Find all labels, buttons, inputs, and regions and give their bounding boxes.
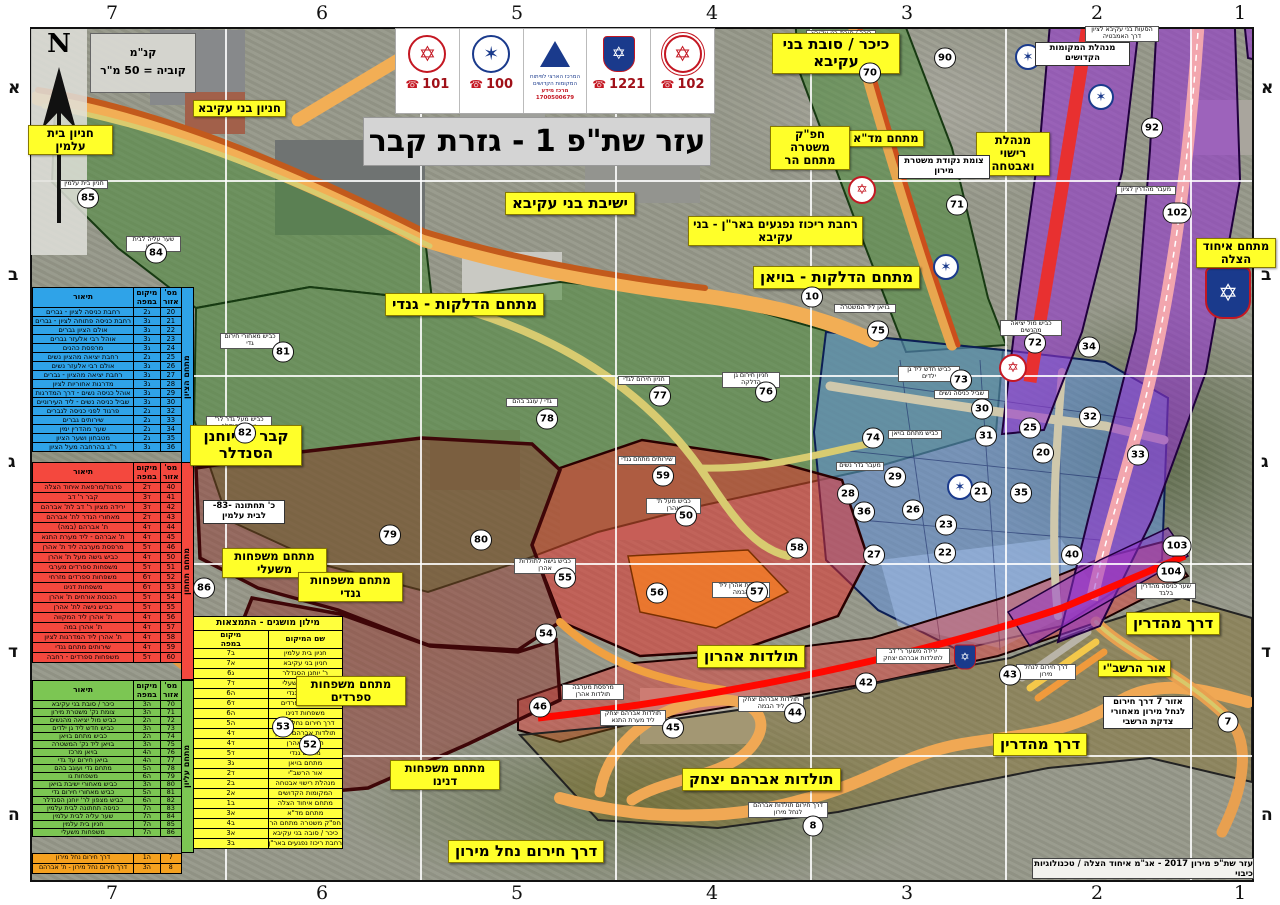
legend-row: 55ד5כביש גישה לת' אהרן bbox=[33, 603, 182, 613]
legend-row: 8ה3דרך חירום נחל מירון - ת' אברהם bbox=[33, 864, 182, 874]
scale-box: קנ"מ קוביה = 50 מ"ר bbox=[90, 33, 196, 93]
legend-row: 73ה3כביש חדש ליד גן ילדים bbox=[33, 725, 182, 733]
north-arrow-icon bbox=[36, 59, 82, 229]
logo-police: ✶ ☎ 100 bbox=[459, 29, 523, 113]
col-header-description: תיאור bbox=[33, 681, 134, 701]
legend-row: 33ג2שירותים גברים bbox=[33, 416, 182, 425]
legend-row: 58ד4ת' אהרן ליד המדרגות לציון bbox=[33, 633, 182, 643]
north-label: N bbox=[31, 29, 87, 59]
glossary-row: תולדות אברהם יצחקד4 bbox=[194, 729, 343, 739]
legend-row: 21ג3רחבת כניסה פתוחה לציון - גברים bbox=[33, 317, 182, 326]
center-line3: מרכז מידע bbox=[530, 88, 580, 95]
emergency-logos-strip: ✡ ☎ 101 ✶ ☎ 100 המרכז הארצי לפיתוח המקומ… bbox=[395, 28, 715, 114]
col-header-description: תיאור bbox=[33, 288, 134, 308]
legend-table-blue: מס' אזור מיקום במפה תיאור 20ג2רחבת כניסה… bbox=[32, 287, 182, 452]
legend-row: 56ד4ת' אהרן ליד המקווה bbox=[33, 613, 182, 623]
glossary-row: מתחם איחוד הצלהב1 bbox=[194, 799, 343, 809]
glossary-row: מתחם מד"אא3 bbox=[194, 809, 343, 819]
col-header-area-num: מס' אזור bbox=[160, 463, 181, 483]
legend-row: 71ה3צומת נק' משטרת מירון bbox=[33, 709, 182, 717]
legend-row: 79ה6משפחות גו bbox=[33, 773, 182, 781]
glossary-row: אור הרשב"יד2 bbox=[194, 769, 343, 779]
legend-row: 75ה3בויאן ליד נק' המשטרה bbox=[33, 741, 182, 749]
glossary-row: חניון בית עלמיןב7 bbox=[194, 649, 343, 659]
logo-fire-rescue: ✡ ☎ 102 bbox=[650, 29, 714, 113]
logo-united-hatzalah: ✡ ☎ 1221 bbox=[586, 29, 650, 113]
legend-row: 74ה2כביש מתחם בויאן bbox=[33, 733, 182, 741]
legend-row: 32ג2פרגוד לפני כניסה לגברים bbox=[33, 407, 182, 416]
glossary-row: משפחות משעליד7 bbox=[194, 679, 343, 689]
logo-mda: ✡ ☎ 101 bbox=[396, 29, 459, 113]
mda-phone: 101 bbox=[422, 77, 449, 92]
legend-row: 26ג3אולם רבי אלעזר נשים bbox=[33, 362, 182, 371]
legend-row: 40ד2פרגוד/מרפאת איחוד הצלה bbox=[33, 483, 182, 493]
legend-row: 46ד5מרפסת מערבה ליד ת' אהרן bbox=[33, 543, 182, 553]
legend-row: 34ג2שער מהדרין ימין bbox=[33, 425, 182, 434]
legend-row: 22ג3אולם הציון גברים bbox=[33, 326, 182, 335]
glossary-row: חניון בני עקיבאא7 bbox=[194, 659, 343, 669]
center-line1: המרכז הארצי לפיתוח bbox=[530, 74, 580, 81]
col-header-location: מיקום במפה bbox=[134, 681, 161, 701]
legend-row: 70ה3כיכר / סובת בני עקיבא bbox=[33, 701, 182, 709]
north-arrow: N bbox=[31, 29, 87, 255]
scale-line1: קנ"מ bbox=[91, 44, 195, 62]
map-margin-left bbox=[0, 0, 30, 905]
legend-row: 20ג2רחבת כניסה לציון - גברים bbox=[33, 308, 182, 317]
legend-table-orange: 7ה1דרך חירום נחל מירון 8ה3דרך חירום נחל … bbox=[32, 853, 182, 874]
hatzalah-phone: 1221 bbox=[609, 77, 645, 92]
glossary-row: משפחות ספרדיםד6 bbox=[194, 699, 343, 709]
legend-row: 84ה7שער עליה לבית עלמין bbox=[33, 813, 182, 821]
glossary-row: משפחות דנינוה6 bbox=[194, 709, 343, 719]
legend-row: 82ה6כביש מצפון לר' יוחנן הסנדלר bbox=[33, 797, 182, 805]
legend-row: 80ה3כביש מאחורי ישיבת בויאן bbox=[33, 781, 182, 789]
legend-row: 35ג2מטבחון ושער הציון bbox=[33, 434, 182, 443]
col-header-location: מיקום במפה bbox=[134, 288, 161, 308]
glossary-row: המקומות הקדושיםא2 bbox=[194, 789, 343, 799]
hatzalah-shield-icon: ✡ bbox=[603, 36, 635, 72]
legend-row: 81ה5כביש מאחורי חירום גדי bbox=[33, 789, 182, 797]
phone-icon: ☎ bbox=[592, 78, 606, 91]
legend-row: 77ה4בויאן חירום עד גדי bbox=[33, 757, 182, 765]
legend-row: 45ד4ת' אברהם - ליד מערת התנא bbox=[33, 533, 182, 543]
legend-row: 52ד6משפחות ספרדים מזרחי bbox=[33, 573, 182, 583]
phone-icon: ☎ bbox=[405, 78, 419, 91]
phone-icon: ☎ bbox=[469, 78, 483, 91]
legend-row: 76ה4בויאן מרכז bbox=[33, 749, 182, 757]
legend-table-green: מס' אזור מיקום במפה תיאור 70ה3כיכר / סוב… bbox=[32, 680, 182, 837]
legend-row: 25ג2רחבת יציאה מהציון נשים bbox=[33, 353, 182, 362]
page-title: עזר שת"פ 1 - גזרת קבר bbox=[363, 117, 711, 166]
police-phone: 100 bbox=[486, 77, 513, 92]
col-header-area-num: מס' אזור bbox=[160, 681, 181, 701]
legend-row: 30ג3שביל כניסה נשים - ליד העירוניים bbox=[33, 398, 182, 407]
legend-row: 42ד3ירידה מציון ר' דב לת' אברהם bbox=[33, 503, 182, 513]
col-header-place-name: שם המיקום bbox=[268, 631, 343, 649]
legend-row: 57ד4ת' אהרן במה bbox=[33, 623, 182, 633]
holy-places-triangle-icon bbox=[540, 41, 570, 67]
glossary-table: מילון מושגים - התמצאות שם המיקום מיקום ב… bbox=[193, 616, 343, 849]
legend-row: 29ג3אוהל כניסה נשים - דרך המדרגות bbox=[33, 389, 182, 398]
glossary-row: מנהלת רישוי אבטחהב2 bbox=[194, 779, 343, 789]
legend-row: 36ג3ר"ג בהרחבה מעל הציון bbox=[33, 443, 182, 452]
col-header-area-num: מס' אזור bbox=[160, 288, 181, 308]
fire-phone: 102 bbox=[677, 77, 704, 92]
legend-row: 72ה2כביש מול יציאה מהנשים bbox=[33, 717, 182, 725]
map-margin-right bbox=[1253, 0, 1280, 905]
glossary-row: חפ"ק משטרה מתחם הרב4 bbox=[194, 819, 343, 829]
legend-row: 59ד4שירותים מתחם גנדי bbox=[33, 643, 182, 653]
col-header-description: תיאור bbox=[33, 463, 134, 483]
glossary-title: מילון מושגים - התמצאות bbox=[194, 617, 343, 631]
glossary-row: משפחות גנדיה6 bbox=[194, 689, 343, 699]
glossary-row: דרך חירום נחל מירוןה5 bbox=[194, 719, 343, 729]
legend-row: 27ג3רחבת יציאה מהציון - גברים bbox=[33, 371, 182, 380]
legend-row: 60ד5משפחות ספרדים - רחבה bbox=[33, 653, 182, 663]
legend-row: 51ד5משפחות ספרדים מערבי bbox=[33, 563, 182, 573]
legend-row: 7ה1דרך חירום נחל מירון bbox=[33, 854, 182, 864]
legend-row: 41ד3קבר ר' דב bbox=[33, 493, 182, 503]
legend-row: 78ה5מתחם גדי ועוגב בהם bbox=[33, 765, 182, 773]
center-line2: המקומות הקדושים bbox=[530, 81, 580, 88]
glossary-row: תולדות אהרןד4 bbox=[194, 739, 343, 749]
scale-line2: קוביה = 50 מ"ר bbox=[91, 62, 195, 80]
legend-row: 50ד4כביש גישה מעל ת' אהרן bbox=[33, 553, 182, 563]
glossary-row: כיכר / סובה בני עקיבאא3 bbox=[194, 829, 343, 839]
legend-table-red: מס' אזור מיקום במפה תיאור 40ד2פרגוד/מרפא… bbox=[32, 462, 182, 663]
legend-row: 28ג3מדרגות אחוריות לציון bbox=[33, 380, 182, 389]
glossary-row: מתחם בויאןג3 bbox=[194, 759, 343, 769]
col-header-location: מיקום במפה bbox=[134, 463, 161, 483]
phone-icon: ☎ bbox=[661, 78, 675, 91]
legend-row: 44ד4ת' אברהם (במה) bbox=[33, 523, 182, 533]
center-phone: 1700500679 bbox=[530, 95, 580, 102]
legend-strip-tziyun: מתחם הציון bbox=[181, 287, 194, 467]
fire-star-icon: ✡ bbox=[664, 35, 702, 73]
police-badge-icon: ✶ bbox=[472, 35, 510, 73]
legend-row: 85ה7חניון בית עלמין bbox=[33, 821, 182, 829]
map-margin-top bbox=[0, 0, 1280, 27]
legend-row: 54ד5הכנסת אורחים ת' אהרן bbox=[33, 593, 182, 603]
legend-row: 43ד2מאחורי הגדר לת' אברהם bbox=[33, 513, 182, 523]
attribution: עזר שת"פ מירון 2017 - אג"מ איחוד הצלה / … bbox=[1032, 858, 1254, 879]
col-header-map-location: מיקום במפה bbox=[194, 631, 269, 649]
logo-holy-places-center: המרכז הארצי לפיתוח המקומות הקדושים מרכז … bbox=[523, 29, 587, 113]
map-margin-bottom bbox=[0, 880, 1280, 905]
legend-row: 86ה7משפחות משעלי bbox=[33, 829, 182, 837]
glossary-row: רחבת ריכוז נפגעים באר"ן - בני עקיבאב3 bbox=[194, 839, 343, 849]
glossary-row: ר' יוחנן הסנדלרג6 bbox=[194, 669, 343, 679]
meron-emergency-map: 7654321 7654321 אבגדה אבגדה N קנ"מ קוביה… bbox=[0, 0, 1280, 905]
legend-row: 24ג3מרפסת כהנים bbox=[33, 344, 182, 353]
legend-row: 23ג3אוהל רבי אלעזר גברים bbox=[33, 335, 182, 344]
mda-star-icon: ✡ bbox=[408, 35, 446, 73]
legend-row: 83ה7כניסה תחתונה לבית עלמין bbox=[33, 805, 182, 813]
legend-row: 53ד6משפחות דנינו bbox=[33, 583, 182, 593]
glossary-row: מתחם גנדיד5 bbox=[194, 749, 343, 759]
